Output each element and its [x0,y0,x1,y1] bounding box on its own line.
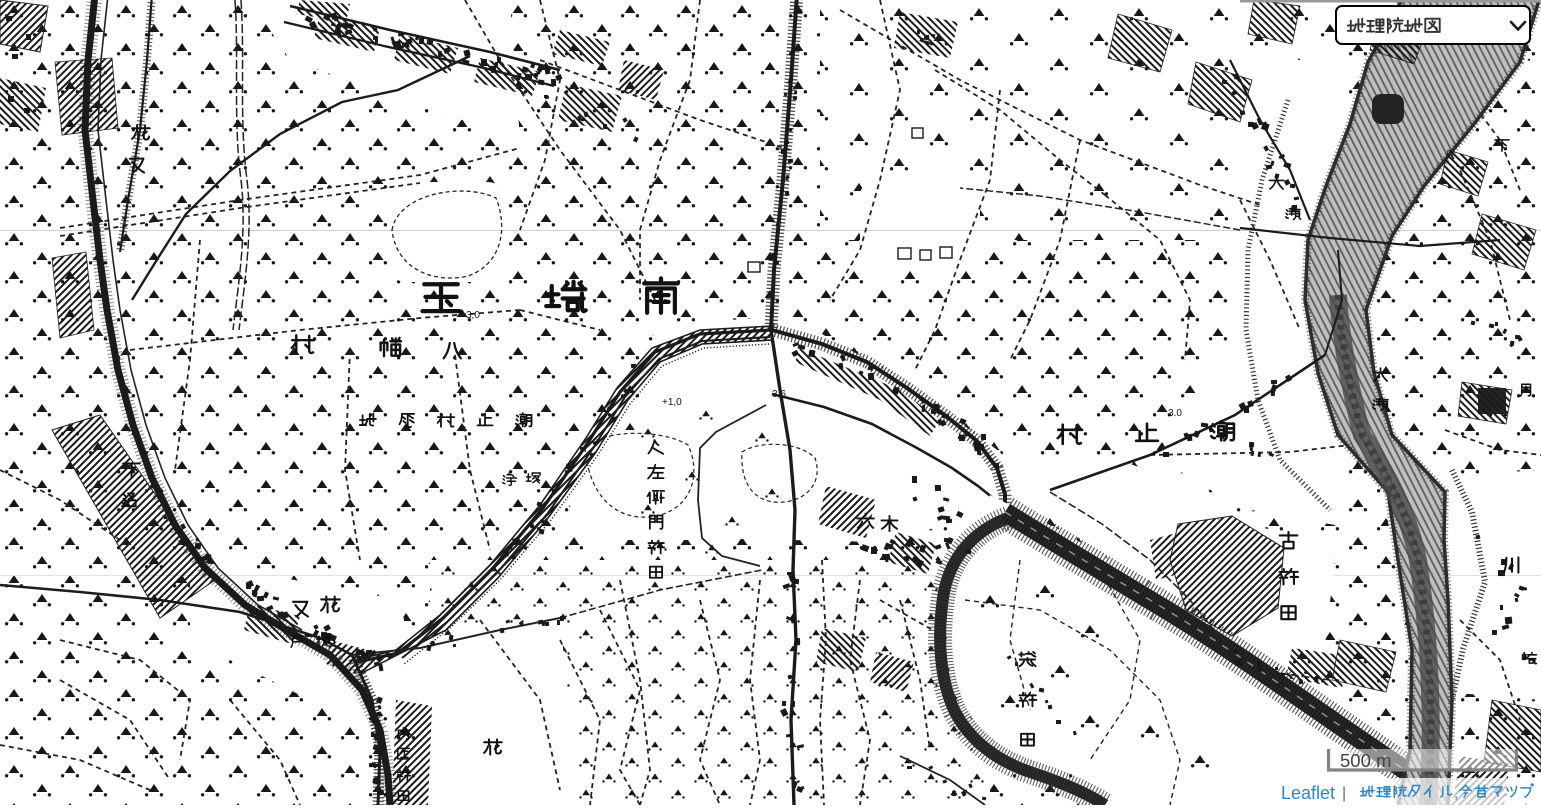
svg-text:Leaflet: Leaflet [1281,783,1335,803]
svg-text:500 m: 500 m [1340,750,1391,771]
svg-text:+1,0: +1,0 [662,397,682,408]
svg-text:,: , [1454,785,1458,802]
svg-text:|: | [1342,785,1346,802]
svg-text:3.0: 3.0 [1168,408,1182,419]
svg-text:3,0: 3,0 [466,310,480,321]
svg-text:3,6: 3,6 [772,389,786,400]
